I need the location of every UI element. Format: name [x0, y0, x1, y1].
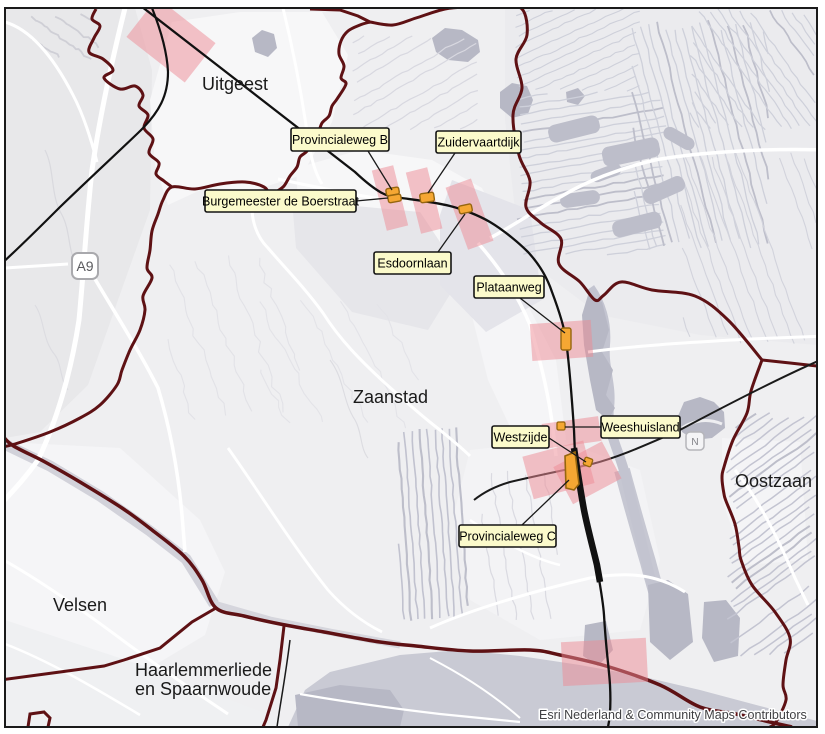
svg-text:N: N [691, 437, 698, 448]
svg-text:Esdoornlaan: Esdoornlaan [377, 257, 447, 271]
svg-text:A9: A9 [76, 258, 93, 274]
svg-text:Burgemeester de Boerstraat: Burgemeester de Boerstraat [202, 195, 360, 209]
svg-text:Provincialeweg C: Provincialeweg C [459, 530, 556, 544]
svg-text:Plataanweg: Plataanweg [476, 281, 541, 295]
svg-text:Weeshuisland: Weeshuisland [601, 421, 679, 435]
svg-text:Esri Nederland & Community Map: Esri Nederland & Community Maps Contribu… [539, 708, 807, 722]
svg-text:en Spaarnwoude: en Spaarnwoude [135, 679, 271, 699]
svg-text:Uitgeest: Uitgeest [202, 74, 268, 94]
svg-text:Oostzaan: Oostzaan [735, 471, 812, 491]
svg-text:Haarlemmerliede: Haarlemmerliede [135, 660, 272, 680]
svg-text:Westzijde: Westzijde [494, 431, 548, 445]
svg-text:Zuidervaartdijk: Zuidervaartdijk [438, 136, 521, 150]
svg-text:Velsen: Velsen [53, 595, 107, 615]
svg-text:Zaanstad: Zaanstad [353, 387, 428, 407]
svg-text:Provincialeweg B: Provincialeweg B [292, 133, 388, 147]
